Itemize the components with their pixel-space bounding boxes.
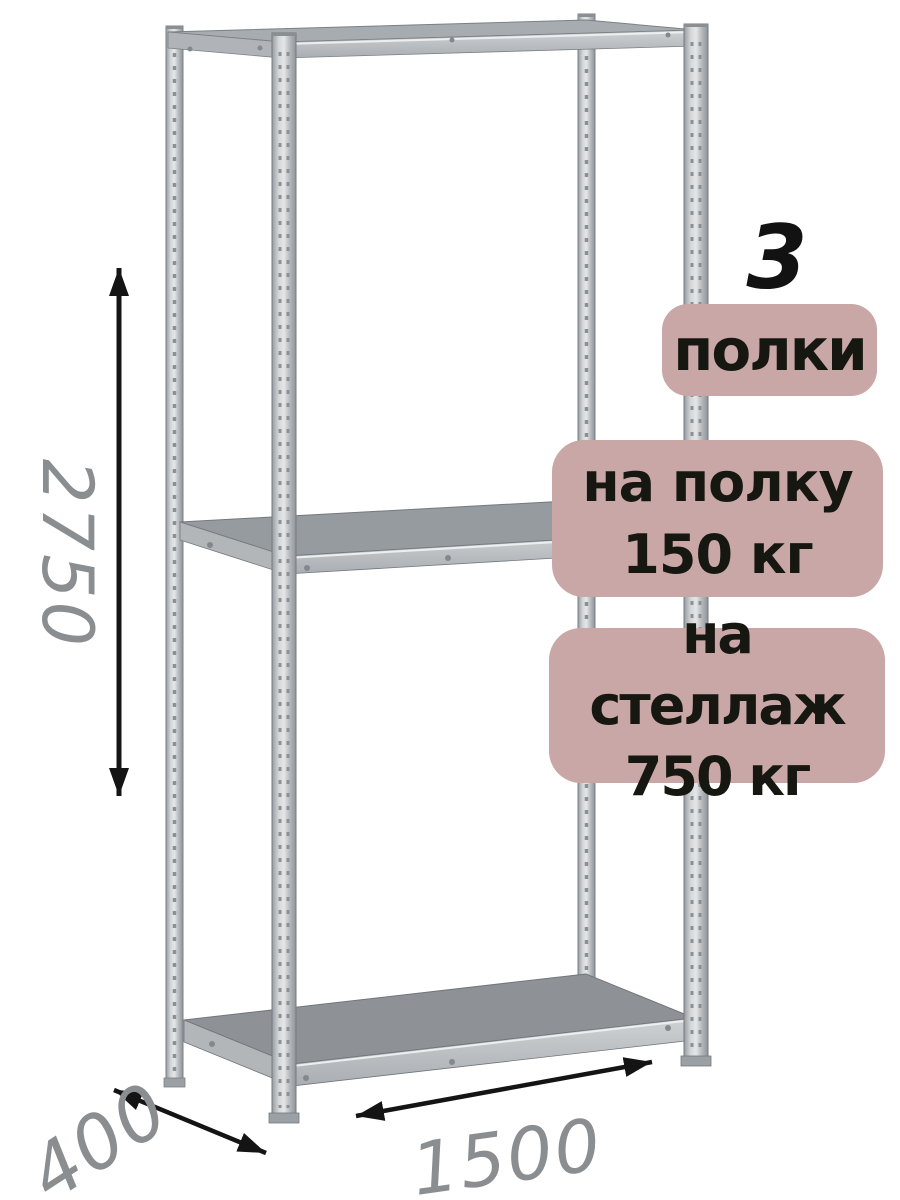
shelf-count-badge-label: полки bbox=[673, 316, 865, 384]
product-image: 2750 400 1500 3 полки на полку 150 кг на… bbox=[0, 0, 900, 1200]
shelf-load-badge: на полку 150 кг bbox=[552, 440, 883, 597]
shelf-count-badge: полки bbox=[662, 304, 877, 396]
front-left-post bbox=[269, 33, 299, 1123]
shelf-load-line2: 150 кг bbox=[622, 519, 812, 590]
rack-load-badge: на стеллаж 750 кг bbox=[549, 628, 885, 783]
height-dimension-label: 2750 bbox=[32, 459, 102, 649]
shelf-load-line1: на полку bbox=[582, 447, 852, 518]
rack-load-line2: 750 кг bbox=[625, 741, 809, 812]
top-shelf bbox=[168, 20, 696, 58]
rack-load-line1: на стеллаж bbox=[549, 599, 885, 742]
shelf-count: 3 bbox=[702, 214, 852, 302]
back-left-post bbox=[164, 26, 185, 1087]
